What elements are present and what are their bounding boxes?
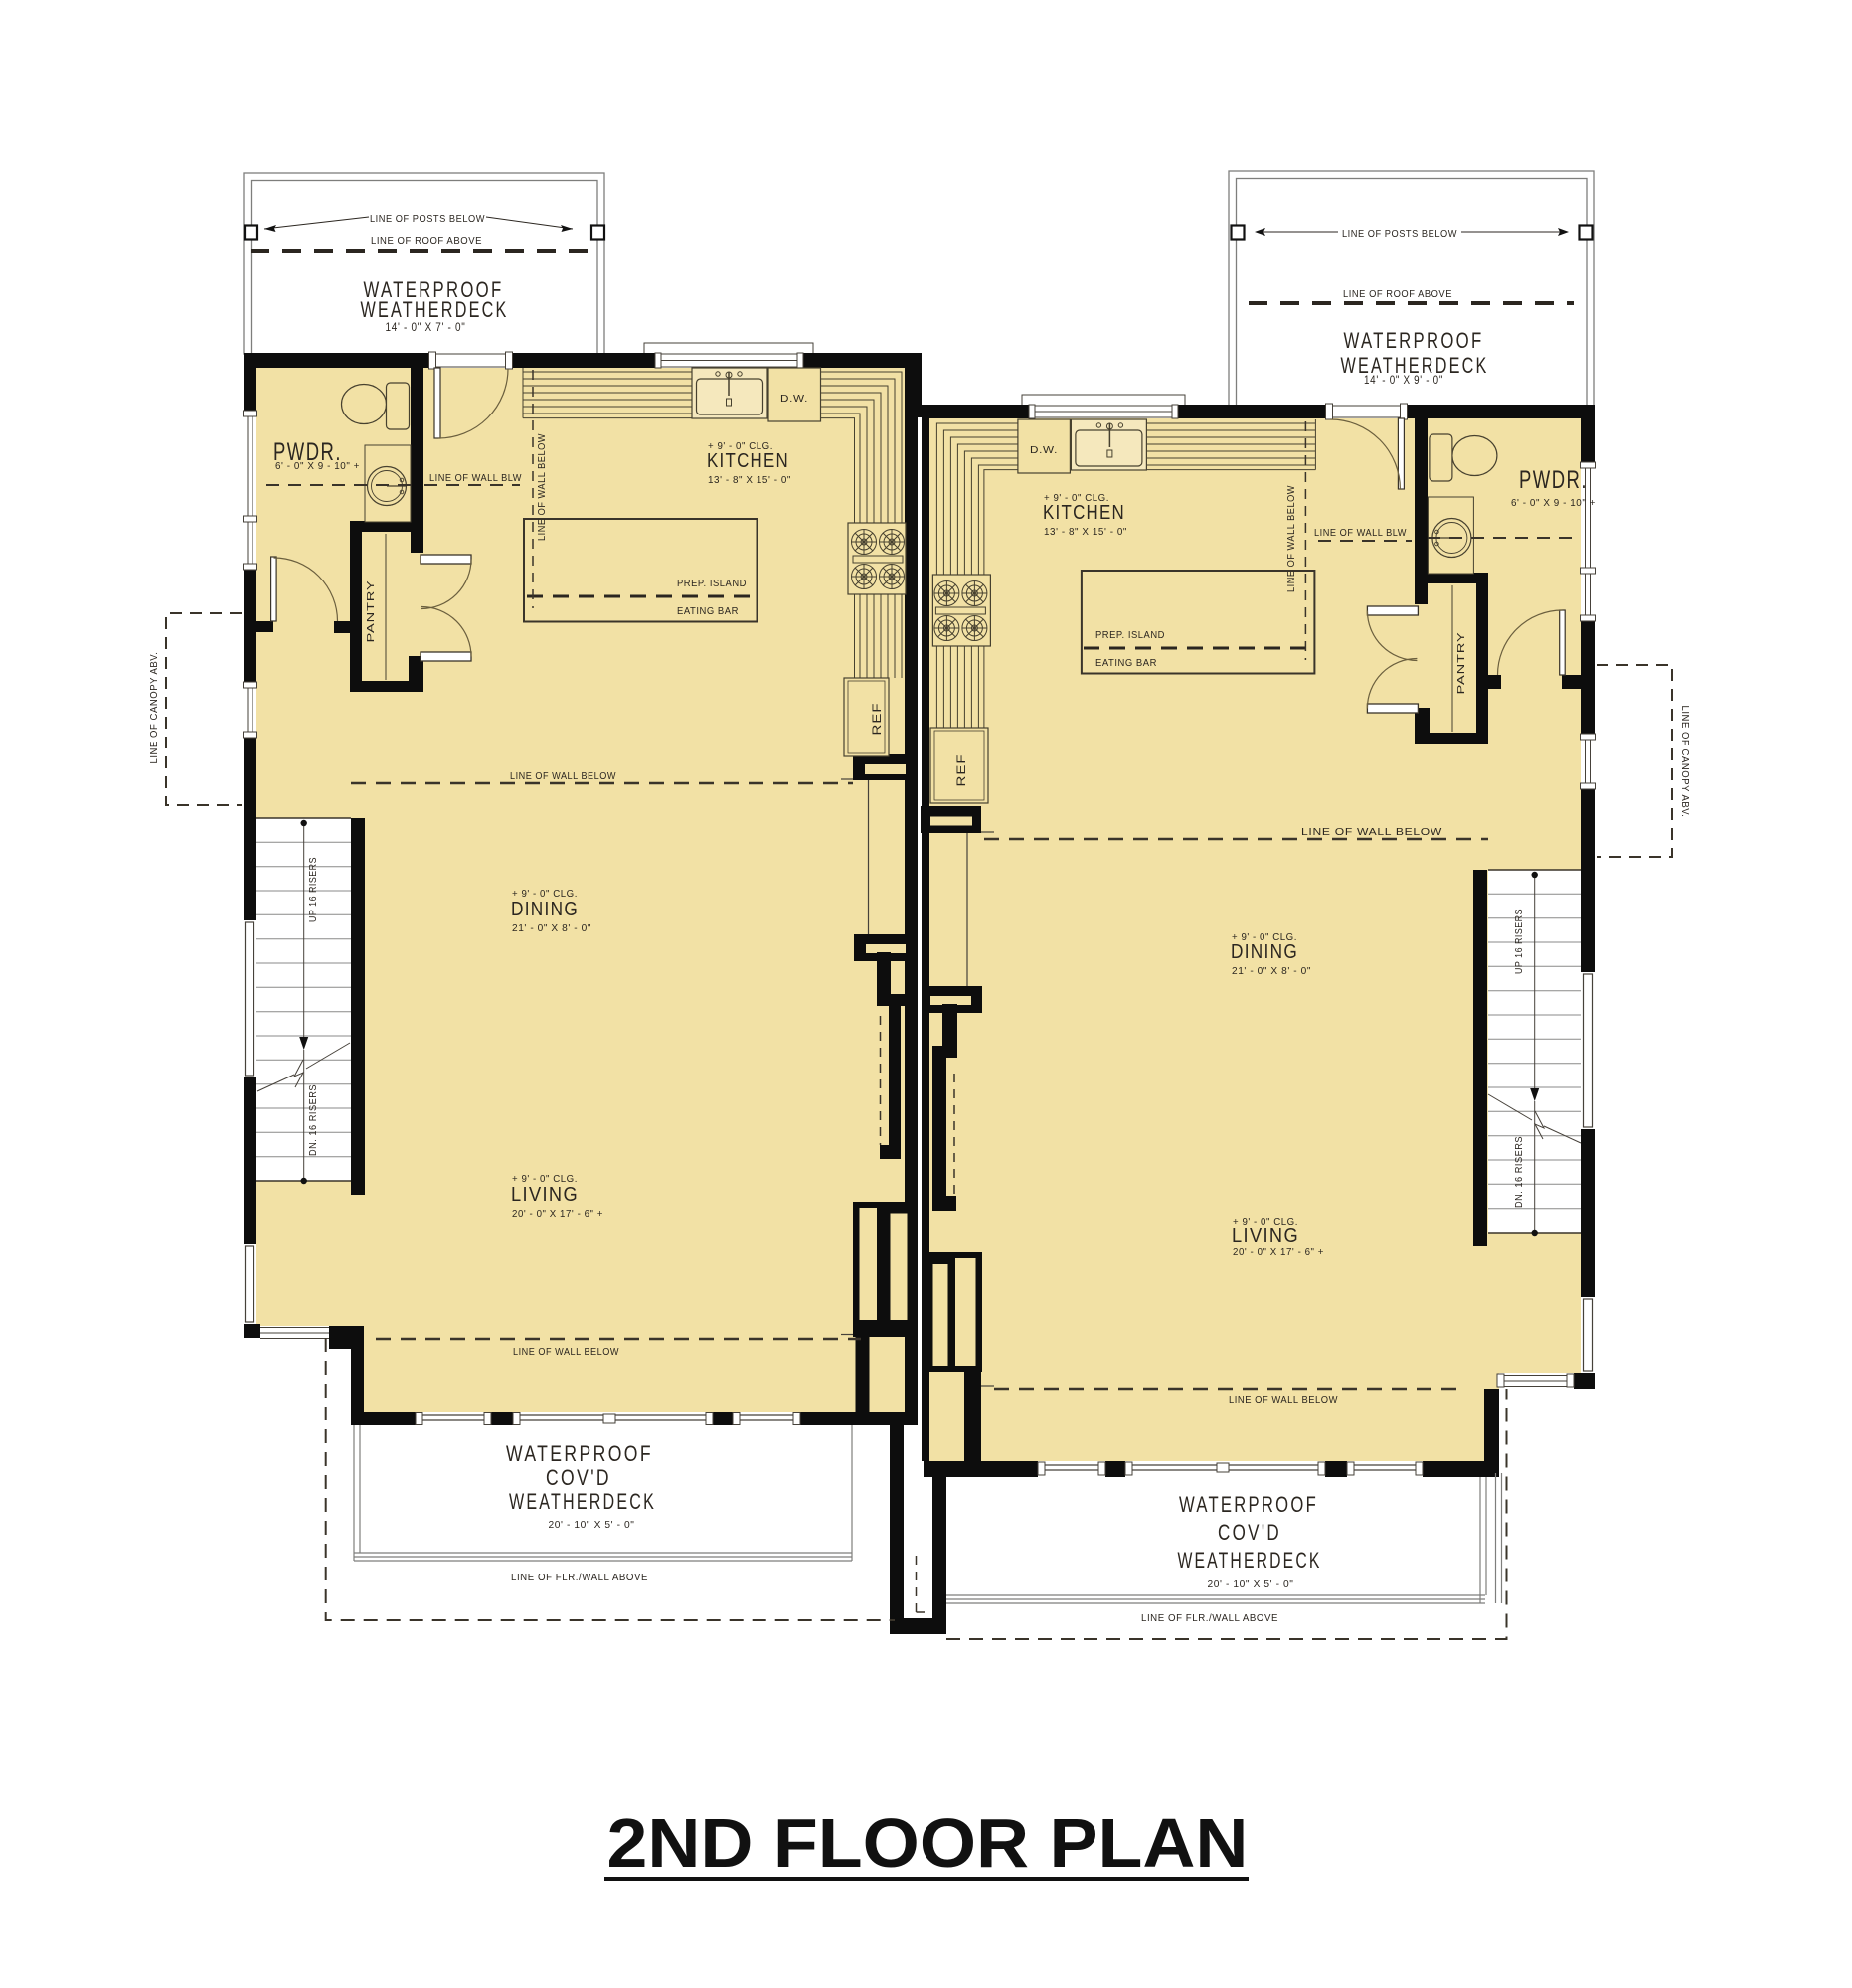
svg-text:WEATHERDECK: WEATHERDECK xyxy=(1178,1548,1322,1573)
svg-text:LINE OF WALL BELOW: LINE OF WALL BELOW xyxy=(1301,826,1442,838)
svg-text:14' - 0" X 9' - 0": 14' - 0" X 9' - 0" xyxy=(1364,375,1443,387)
svg-text:14' - 0" X 7' - 0": 14' - 0" X 7' - 0" xyxy=(386,322,466,334)
svg-text:LINE OF WALL BELOW: LINE OF WALL BELOW xyxy=(1229,1394,1338,1406)
svg-text:WATERPROOF: WATERPROOF xyxy=(1344,328,1484,353)
svg-text:LINE OF POSTS BELOW: LINE OF POSTS BELOW xyxy=(370,213,485,225)
svg-text:PWDR.: PWDR. xyxy=(1519,466,1588,494)
svg-text:20' - 0" X 17' - 6" +: 20' - 0" X 17' - 6" + xyxy=(512,1208,603,1220)
svg-text:LINE OF WALL BLW: LINE OF WALL BLW xyxy=(429,472,522,484)
svg-text:LIVING: LIVING xyxy=(511,1184,579,1206)
svg-text:LINE OF WALL BLW: LINE OF WALL BLW xyxy=(1314,527,1407,539)
svg-text:UP 16 RISERS: UP 16 RISERS xyxy=(307,857,319,922)
svg-text:REF: REF xyxy=(956,754,968,787)
svg-text:DN. 16 RISERS: DN. 16 RISERS xyxy=(307,1084,319,1156)
svg-text:WATERPROOF: WATERPROOF xyxy=(1179,1492,1318,1517)
svg-text:LINE OF ROOF ABOVE: LINE OF ROOF ABOVE xyxy=(1343,288,1452,300)
svg-text:LINE OF WALL BELOW: LINE OF WALL BELOW xyxy=(510,770,616,782)
svg-text:EATING BAR: EATING BAR xyxy=(677,605,739,617)
svg-text:LINE OF CANOPY ABV.: LINE OF CANOPY ABV. xyxy=(1679,706,1691,818)
svg-text:13' - 8" X 15' - 0": 13' - 8" X 15' - 0" xyxy=(1044,526,1127,538)
svg-text:PREP. ISLAND: PREP. ISLAND xyxy=(1095,629,1165,641)
svg-text:2ND FLOOR PLAN: 2ND FLOOR PLAN xyxy=(607,1804,1249,1882)
svg-text:20' - 0" X 17' - 6" +: 20' - 0" X 17' - 6" + xyxy=(1233,1246,1324,1258)
svg-text:20' - 10" X 5' - 0": 20' - 10" X 5' - 0" xyxy=(549,1519,635,1531)
svg-text:UP 16 RISERS: UP 16 RISERS xyxy=(1513,909,1525,974)
svg-text:LINE OF FLR./WALL ABOVE: LINE OF FLR./WALL ABOVE xyxy=(1141,1612,1278,1624)
svg-text:WATERPROOF: WATERPROOF xyxy=(506,1441,653,1466)
svg-text:LINE OF WALL BELOW: LINE OF WALL BELOW xyxy=(536,433,548,541)
svg-text:D.W.: D.W. xyxy=(1030,444,1058,456)
svg-text:21' - 0" X 8' - 0": 21' - 0" X 8' - 0" xyxy=(1232,965,1311,977)
svg-text:D.W.: D.W. xyxy=(780,393,808,405)
svg-text:LINE OF WALL BELOW: LINE OF WALL BELOW xyxy=(1285,485,1297,592)
svg-text:6' - 0" X 9 - 10" +: 6' - 0" X 9 - 10" + xyxy=(275,460,360,472)
svg-text:LINE OF WALL BELOW: LINE OF WALL BELOW xyxy=(513,1346,619,1358)
svg-text:13' - 8" X 15' - 0": 13' - 8" X 15' - 0" xyxy=(708,474,791,486)
svg-text:21' - 0" X 8' - 0": 21' - 0" X 8' - 0" xyxy=(512,922,591,934)
svg-text:LINE OF CANOPY ABV.: LINE OF CANOPY ABV. xyxy=(148,652,160,764)
svg-text:LINE OF ROOF ABOVE: LINE OF ROOF ABOVE xyxy=(371,235,482,247)
svg-text:PANTRY: PANTRY xyxy=(1455,632,1467,695)
svg-text:COV'D: COV'D xyxy=(1218,1520,1281,1545)
svg-text:DN. 16 RISERS: DN. 16 RISERS xyxy=(1513,1136,1525,1208)
svg-text:LINE OF FLR./WALL ABOVE: LINE OF FLR./WALL ABOVE xyxy=(511,1572,648,1583)
svg-text:LIVING: LIVING xyxy=(1232,1225,1299,1246)
svg-text:EATING BAR: EATING BAR xyxy=(1095,657,1157,669)
svg-text:PANTRY: PANTRY xyxy=(365,580,377,643)
svg-text:PREP. ISLAND: PREP. ISLAND xyxy=(677,578,747,589)
svg-text:DINING: DINING xyxy=(511,899,579,920)
svg-text:20' - 10" X 5' - 0": 20' - 10" X 5' - 0" xyxy=(1208,1578,1294,1590)
svg-text:LINE OF POSTS BELOW: LINE OF POSTS BELOW xyxy=(1342,228,1457,240)
svg-text:6' - 0" X 9 - 10" +: 6' - 0" X 9 - 10" + xyxy=(1511,497,1596,509)
svg-text:WEATHERDECK: WEATHERDECK xyxy=(361,297,509,322)
svg-text:DINING: DINING xyxy=(1231,941,1298,963)
svg-text:KITCHEN: KITCHEN xyxy=(1043,502,1125,524)
svg-text:KITCHEN: KITCHEN xyxy=(707,450,789,472)
svg-text:COV'D: COV'D xyxy=(546,1465,611,1490)
svg-text:WEATHERDECK: WEATHERDECK xyxy=(509,1489,656,1514)
svg-text:REF: REF xyxy=(872,703,884,736)
